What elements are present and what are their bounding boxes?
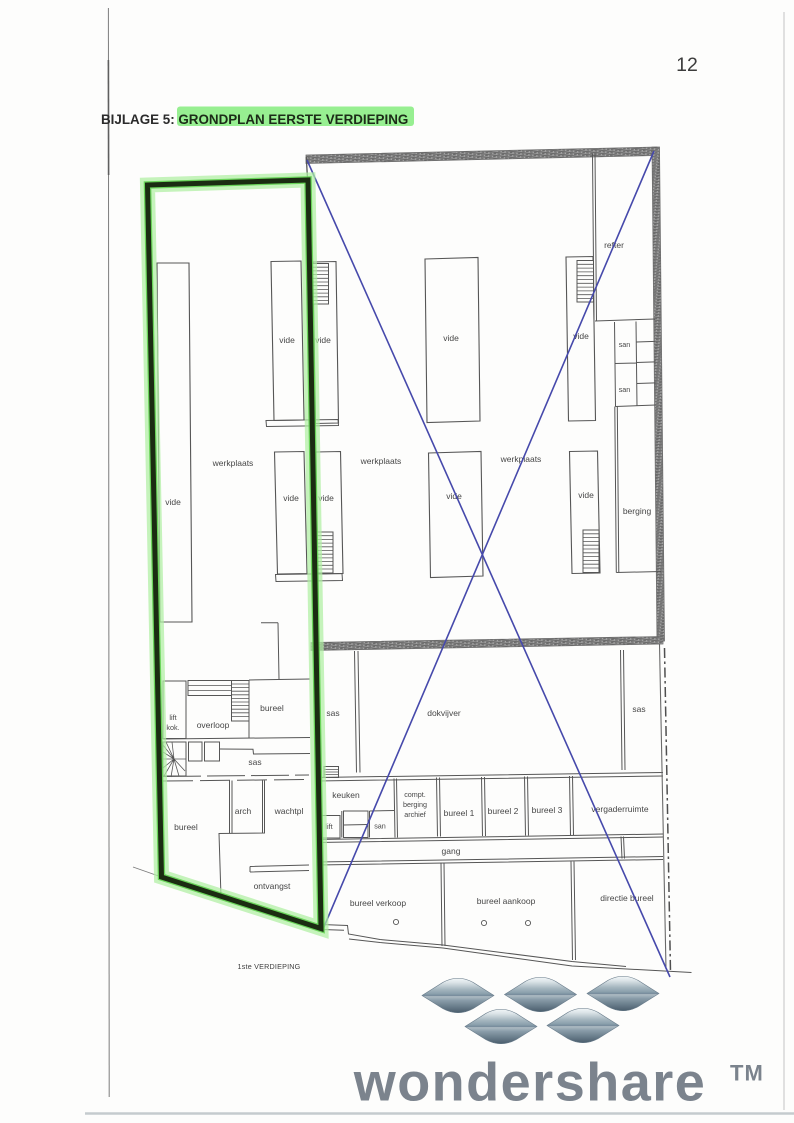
svg-text:bureel aankoop: bureel aankoop	[477, 896, 536, 906]
svg-text:bureel verkoop: bureel verkoop	[350, 898, 407, 908]
svg-text:overloop: overloop	[197, 720, 230, 730]
svg-text:bureel 1: bureel 1	[444, 808, 475, 818]
svg-text:kok.: kok.	[166, 723, 179, 732]
svg-text:sas: sas	[248, 757, 261, 767]
svg-text:werkplaats: werkplaats	[500, 454, 542, 464]
svg-text:werkplaats: werkplaats	[360, 456, 402, 466]
svg-text:vergaderruimte: vergaderruimte	[591, 804, 648, 814]
svg-text:san: san	[619, 385, 631, 394]
svg-text:berging: berging	[623, 506, 652, 516]
svg-text:vide: vide	[165, 497, 181, 507]
svg-text:berging: berging	[403, 800, 427, 809]
svg-text:wondershare: wondershare	[353, 1053, 707, 1113]
svg-text:directie bureel: directie bureel	[600, 893, 654, 903]
svg-text:vide: vide	[283, 493, 299, 503]
svg-text:san: san	[374, 822, 386, 831]
svg-text:vide: vide	[578, 490, 594, 500]
svg-text:ontvangst: ontvangst	[254, 881, 291, 891]
svg-text:1ste VERDIEPING: 1ste VERDIEPING	[238, 962, 301, 971]
svg-text:12: 12	[676, 54, 698, 76]
svg-text:BIJLAGE 5: GRONDPLAN EERSTE VE: BIJLAGE 5: GRONDPLAN EERSTE VERDIEPING	[101, 112, 408, 127]
svg-text:bureel 2: bureel 2	[488, 806, 519, 816]
svg-text:TM: TM	[730, 1061, 764, 1086]
svg-text:sas: sas	[326, 708, 339, 718]
svg-text:bureel: bureel	[174, 822, 198, 832]
svg-text:vide: vide	[443, 333, 459, 343]
svg-text:werkplaats: werkplaats	[212, 458, 254, 468]
svg-text:arch: arch	[235, 806, 252, 816]
svg-text:san: san	[619, 340, 631, 349]
svg-text:lift: lift	[169, 713, 176, 722]
svg-text:archief: archief	[404, 810, 426, 819]
svg-text:dokvijver: dokvijver	[427, 708, 461, 718]
svg-text:keuken: keuken	[332, 790, 360, 800]
svg-text:bureel 3: bureel 3	[532, 805, 563, 815]
svg-text:gang: gang	[442, 846, 461, 856]
svg-text:compt.: compt.	[404, 790, 426, 799]
svg-text:bureel: bureel	[260, 703, 284, 713]
svg-text:sas: sas	[632, 704, 645, 714]
svg-text:vide: vide	[279, 335, 295, 345]
svg-text:wachtpl: wachtpl	[274, 806, 304, 816]
